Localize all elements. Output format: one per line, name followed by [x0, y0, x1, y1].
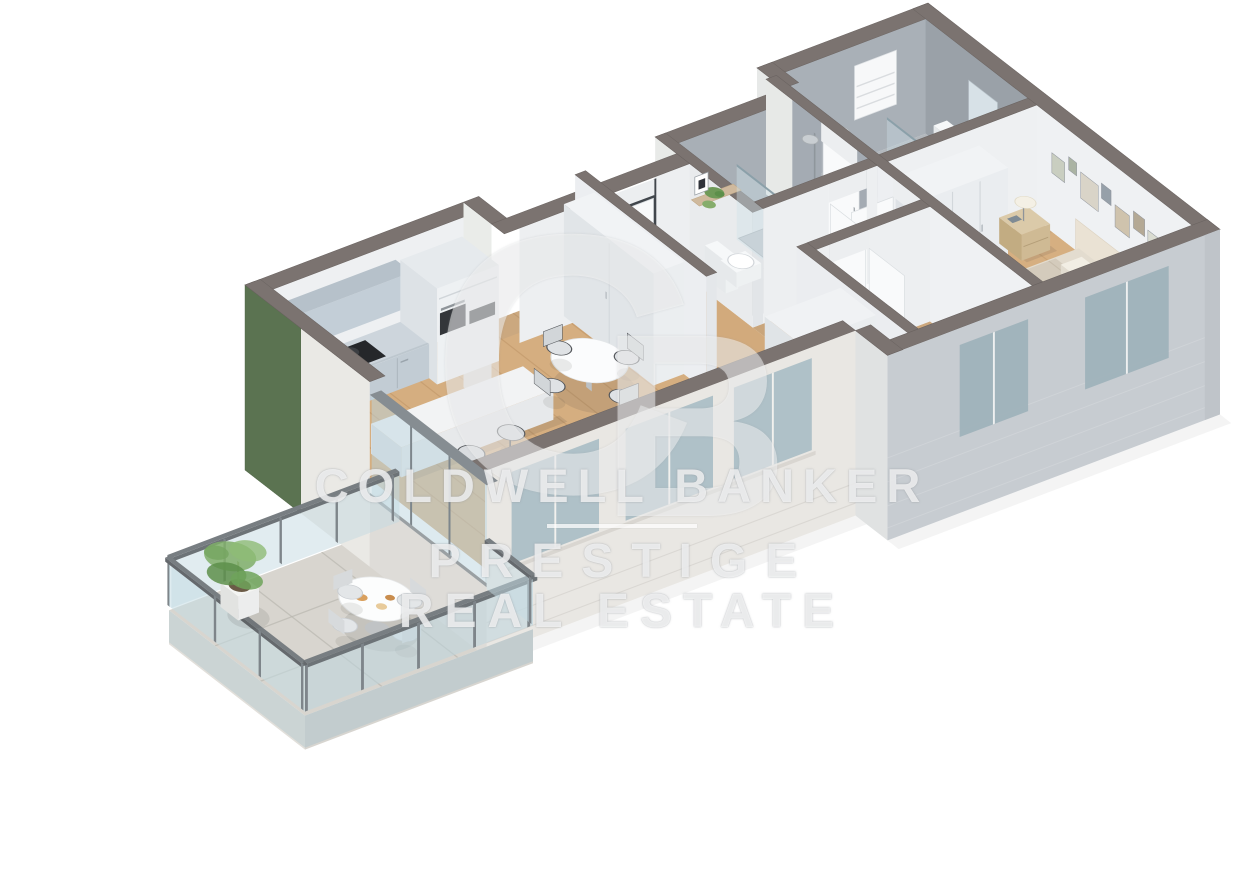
- rail-post: [361, 643, 364, 690]
- east-facade-end: [1205, 229, 1220, 420]
- floor-plan-image: C B COLDWELL BANKER PRESTIGE REAL ESTATE: [0, 0, 1244, 880]
- window-mullion: [1126, 281, 1128, 374]
- floor-plan-render: [0, 0, 1244, 880]
- rail-post: [305, 665, 308, 712]
- rail-post: [473, 601, 476, 648]
- rail-post: [529, 576, 531, 624]
- rail-post: [214, 595, 216, 643]
- rail-post: [336, 495, 338, 543]
- glass-mullion: [410, 424, 412, 528]
- closet-seam: [609, 243, 610, 350]
- window-mullion: [993, 332, 995, 425]
- cabinet-seam: [397, 358, 398, 388]
- wardrobe-handle: [981, 224, 982, 232]
- facade-step-wall: [856, 331, 888, 541]
- rail-post: [392, 474, 394, 522]
- rail-post: [417, 622, 420, 669]
- closet-handle: [606, 291, 607, 299]
- window-mullion: [554, 455, 556, 548]
- window-mullion: [668, 412, 670, 505]
- rail-post: [280, 516, 282, 564]
- rail-post: [259, 630, 261, 678]
- rail-post: [301, 663, 303, 711]
- window-mullion: [772, 373, 774, 466]
- glass-mullion: [449, 454, 451, 558]
